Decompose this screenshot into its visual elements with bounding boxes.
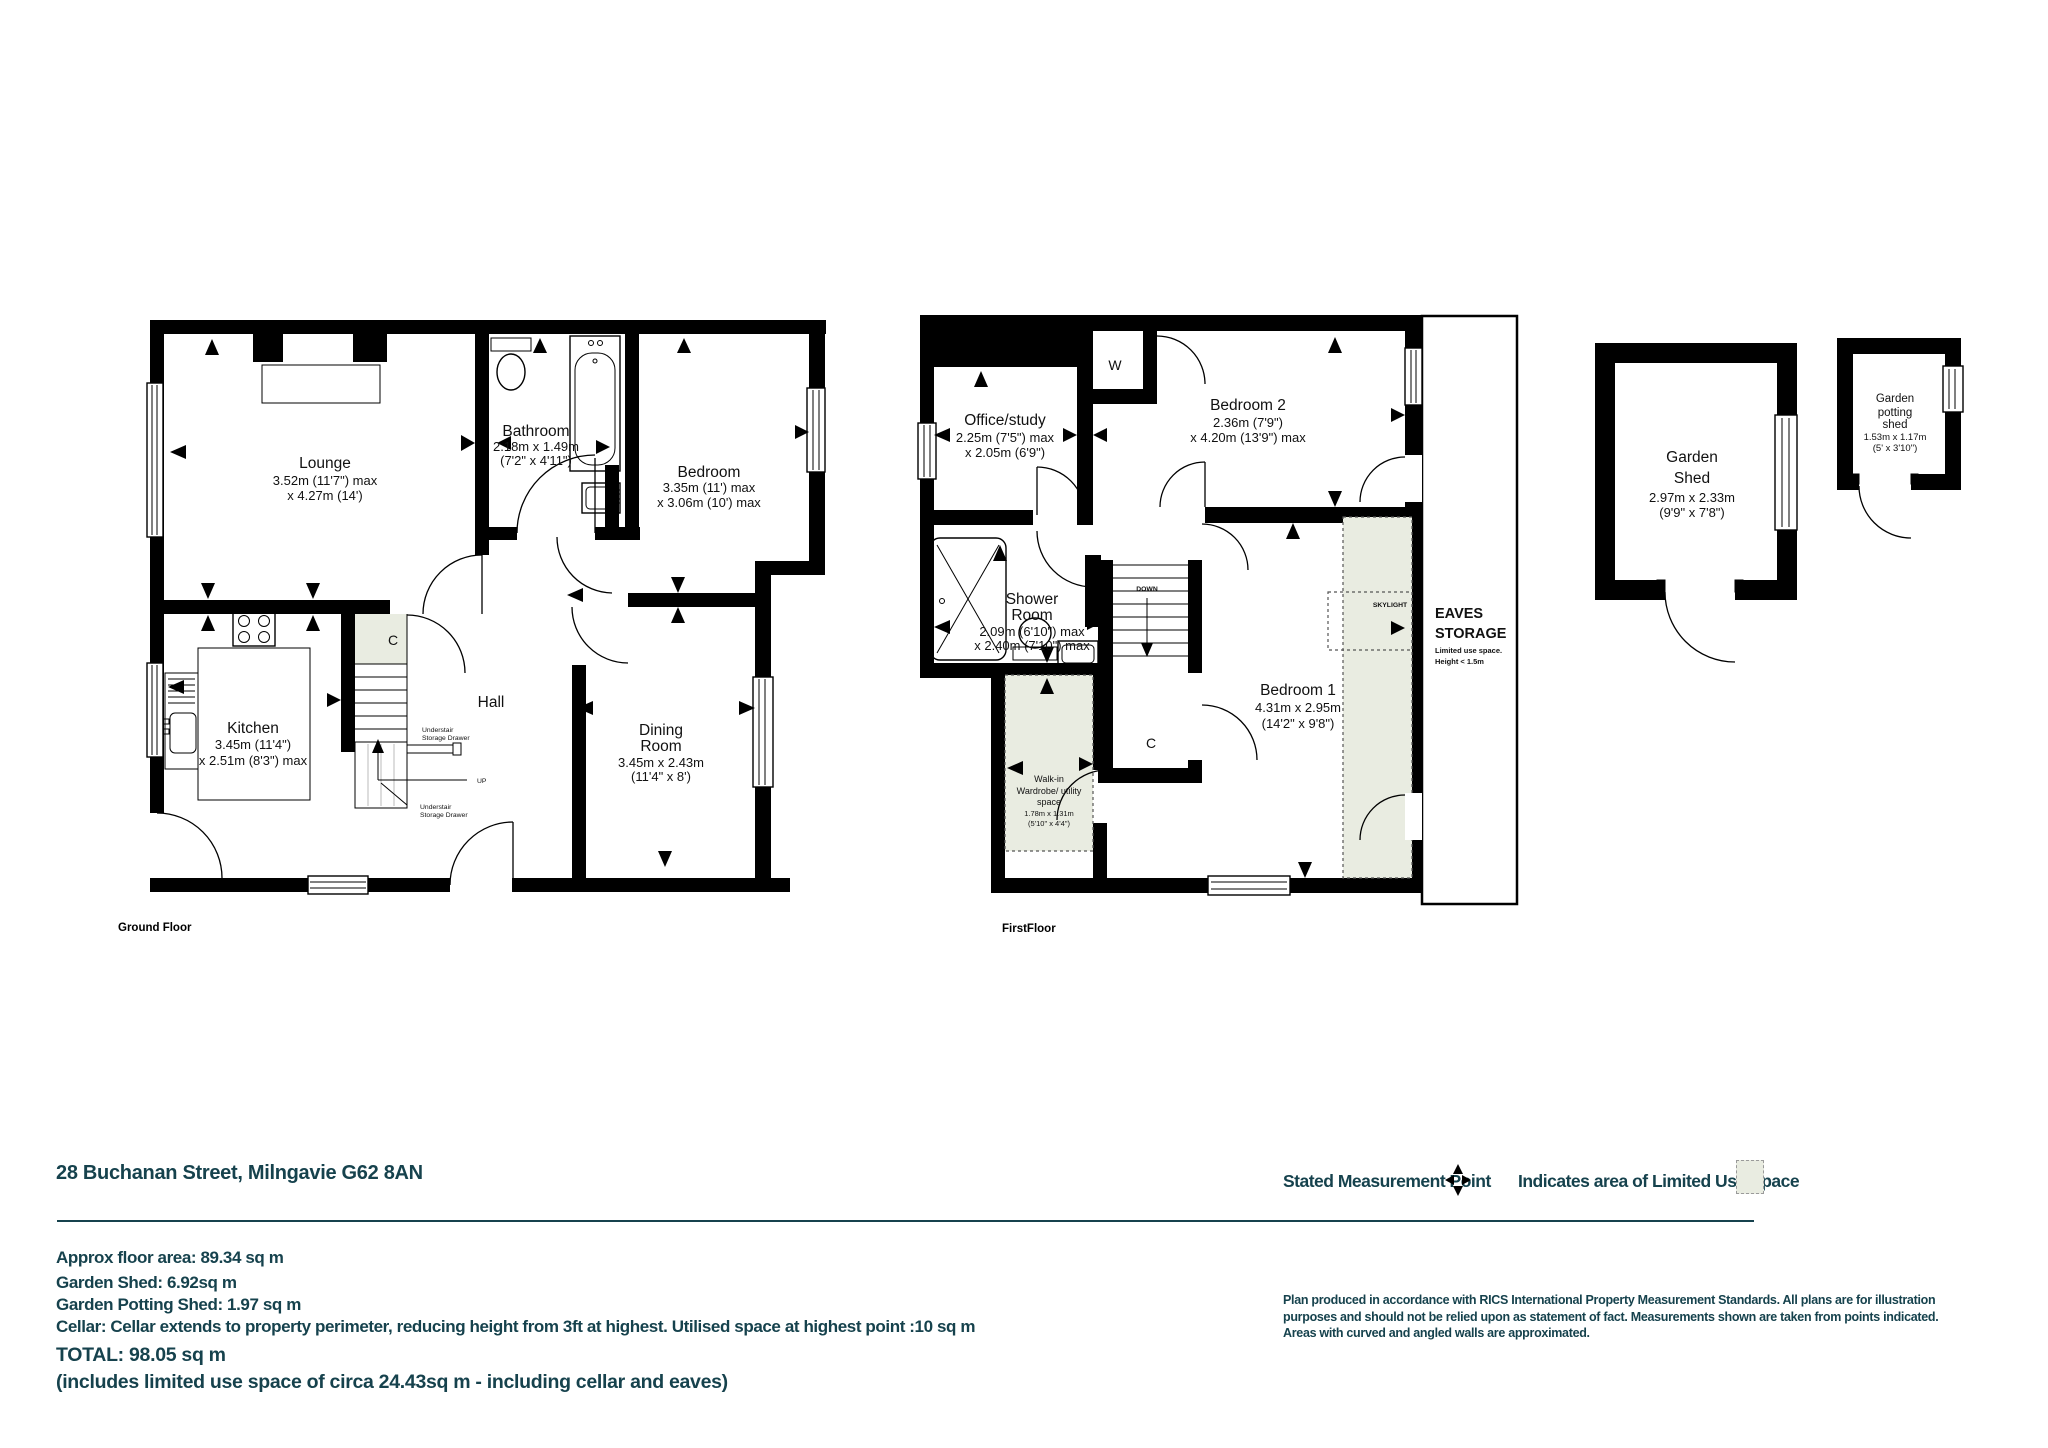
summary-total: TOTAL: 98.05 sq m [56, 1344, 226, 1367]
measurement-arrow-icon [306, 583, 320, 599]
garden-shed-plan: Garden Shed 2.97m x 2.33m (9'9" x 7'8") [1592, 340, 1807, 675]
window-symbol [308, 876, 368, 894]
room-label-shower-room: Room [1011, 607, 1052, 624]
svg-text:Limited use space.: Limited use space. [1435, 646, 1502, 655]
room-dims: (14'2" x 9'8") [1262, 716, 1335, 731]
understair-label: Understair [422, 727, 454, 734]
svg-text:Garden: Garden [1666, 449, 1718, 466]
down-arrow-icon [1141, 598, 1153, 657]
svg-text:(5' x 3'10"): (5' x 3'10") [1873, 443, 1918, 454]
measurement-arrow-icon [671, 577, 685, 593]
window-symbol [1405, 348, 1422, 405]
window-symbol [918, 423, 936, 479]
walk-in-label: Wardrobe/ utility [1017, 786, 1082, 796]
property-address: 28 Buchanan Street, Milngavie G62 8AN [56, 1162, 423, 1185]
toilet-icon [491, 338, 531, 390]
measurement-arrow-icon [201, 583, 215, 599]
up-label: UP [477, 778, 487, 785]
cupboard-label: C [1146, 735, 1156, 751]
measurement-arrow-icon [677, 338, 691, 353]
measurement-arrow-icon [1391, 408, 1405, 422]
summary-garden-shed: Garden Shed: 6.92sq m [56, 1273, 237, 1293]
svg-text:Height < 1.5m: Height < 1.5m [1435, 657, 1484, 666]
room-dims: x 3.06m (10') max [657, 495, 761, 510]
summary-cellar: Cellar: Cellar extends to property perim… [56, 1317, 975, 1337]
floorplan-page: Lounge 3.52m (11'7") max x 4.27m (14') B… [0, 0, 2048, 1448]
measurement-arrow-icon [461, 435, 475, 451]
understair-label: Storage Drawer [420, 812, 468, 819]
window-symbol [807, 388, 825, 472]
measurement-arrow-icon [327, 693, 341, 707]
fireplace-hearth [262, 365, 380, 403]
svg-text:1.53m x 1.17m: 1.53m x 1.17m [1864, 432, 1927, 443]
storage-drawer-icon [407, 745, 453, 753]
room-dims: 3.45m (11'4") [215, 737, 291, 752]
svg-text:potting: potting [1878, 407, 1913, 419]
room-dims: 3.45m x 2.43m [618, 755, 704, 770]
summary-approx-floor-area: Approx floor area: 89.34 sq m [56, 1248, 283, 1268]
ground-floor-label: Ground Floor [118, 922, 191, 934]
staircase-first-floor [1113, 565, 1188, 657]
walk-in-label: Walk-in [1034, 774, 1064, 784]
room-dims: 4.31m x 2.95m [1255, 700, 1341, 715]
understair-label: Understair [420, 804, 452, 811]
cupboard-shading [355, 614, 407, 664]
room-dims: x 4.27m (14') [287, 488, 362, 503]
room-dims: x 2.05m (6'9") [965, 445, 1045, 460]
svg-text:Shed: Shed [1674, 470, 1710, 487]
down-label: DOWN [1136, 586, 1158, 593]
measurement-arrow-icon [1328, 337, 1342, 353]
room-dims: 2.09m (6'10") max [979, 624, 1085, 639]
measurement-arrow-icon [567, 588, 583, 602]
door-arc-icon [1657, 580, 1743, 662]
skylight-label: SKYLIGHT [1373, 602, 1408, 609]
room-label-bedroom: Bedroom [678, 464, 741, 481]
first-floor-plan: Office/study 2.25m (7'5") max x 2.05m (6… [915, 243, 1525, 913]
ground-floor-walls [150, 320, 826, 892]
window-symbol [753, 677, 773, 787]
measurement-arrow-icon [658, 851, 672, 867]
walk-in-dims: 1.78m x 1.31m [1024, 809, 1074, 818]
understair-label: Storage Drawer [422, 735, 470, 742]
first-floor-label: FirstFloor [1002, 923, 1056, 935]
ground-floor-plan: Lounge 3.52m (11'7") max x 4.27m (14') B… [145, 315, 835, 915]
room-dims: x 2.51m (8'3") max [199, 753, 308, 768]
measurement-arrow-icon [533, 338, 547, 353]
window-symbol [147, 663, 163, 757]
svg-text:Garden: Garden [1876, 393, 1914, 405]
room-label-dining: Dining [639, 722, 683, 739]
divider-line [57, 1220, 1754, 1222]
measurement-arrow-icon [934, 620, 950, 634]
disclaimer-line: purposes and should not be relied upon a… [1283, 1309, 1938, 1326]
window-symbol [1775, 415, 1797, 530]
window-symbol [1208, 876, 1290, 895]
window-symbol [147, 383, 163, 537]
room-label-office: Office/study [964, 412, 1046, 429]
measurement-arrow-icon [168, 680, 184, 694]
hob-icon [233, 612, 275, 646]
measurement-arrow-icon [596, 440, 610, 454]
measurement-arrow-icon [671, 607, 685, 623]
limited-use-swatch [1736, 1160, 1764, 1194]
summary-garden-potting-shed: Garden Potting Shed: 1.97 sq m [56, 1295, 301, 1315]
room-label-kitchen: Kitchen [227, 720, 279, 737]
measurement-arrow-icon [1093, 428, 1107, 442]
door-arc-icon [1852, 474, 1918, 538]
ground-floor-doors [150, 455, 628, 892]
measurement-arrow-icon [1286, 523, 1300, 539]
summary-includes-note: (includes limited use space of circa 24.… [56, 1371, 728, 1394]
disclaimer-line: Plan produced in accordance with RICS In… [1283, 1292, 1938, 1309]
measurement-arrow-icon [1298, 862, 1312, 878]
measurement-arrow-icon [306, 615, 320, 631]
room-dims: 2.36m (7'9") [1213, 415, 1283, 430]
svg-text:EAVES: EAVES [1435, 606, 1483, 622]
measurement-point-icon [1443, 1162, 1473, 1198]
skylight-limited-use-strip [1343, 517, 1412, 878]
room-dims: x 4.20m (13'9") max [1190, 430, 1306, 445]
measurement-arrow-icon [170, 445, 186, 459]
staircase [355, 614, 467, 808]
cupboard-label: C [388, 632, 398, 648]
garden-shed-label: Garden Shed 2.97m x 2.33m (9'9" x 7'8") [1649, 449, 1735, 520]
walk-in-label: space [1037, 797, 1061, 807]
disclaimer-text: Plan produced in accordance with RICS In… [1283, 1292, 1938, 1342]
room-label-shower-room: Shower [1006, 591, 1059, 608]
room-label-bathroom: Bathroom [502, 423, 569, 440]
potting-shed-label: Garden potting shed 1.53m x 1.17m (5' x … [1864, 393, 1927, 454]
measurement-arrow-icon [974, 371, 988, 387]
disclaimer-line: Areas with curved and angled walls are a… [1283, 1325, 1938, 1342]
wardrobe-label: W [1108, 357, 1122, 373]
svg-text:shed: shed [1883, 419, 1908, 431]
room-dims: 2.25m (7'5") max [956, 430, 1055, 445]
room-label-lounge: Lounge [299, 455, 351, 472]
measurement-arrow-icon [993, 545, 1007, 561]
garden-potting-shed-plan: Garden potting shed 1.53m x 1.17m (5' x … [1835, 336, 1965, 541]
svg-text:(9'9" x 7'8"): (9'9" x 7'8") [1659, 505, 1725, 520]
kitchen-fixtures [163, 612, 310, 800]
room-dims: (11'4" x 8') [631, 769, 691, 784]
room-label-bedroom2: Bedroom 2 [1210, 397, 1286, 414]
window-symbol [1943, 366, 1963, 412]
measurement-arrow-icon [1328, 491, 1342, 507]
room-dims: (7'2" x 4'11") [500, 453, 572, 468]
measurement-arrow-icon [205, 339, 219, 355]
room-label-bedroom1: Bedroom 1 [1260, 682, 1336, 699]
room-dims: 2.18m x 1.49m [493, 439, 579, 454]
measurement-arrow-icon [1063, 428, 1077, 442]
walk-in-dims: (5'10" x 4'4") [1028, 819, 1070, 828]
room-label-dining: Room [640, 738, 681, 755]
measurement-arrow-icon [201, 615, 215, 631]
room-dims: 3.52m (11'7") max [273, 473, 378, 488]
room-dims: 3.35m (11') max [663, 480, 756, 495]
room-dims: x 2.40m (7'10") max [974, 638, 1090, 653]
svg-text:STORAGE: STORAGE [1435, 626, 1507, 642]
svg-text:2.97m x 2.33m: 2.97m x 2.33m [1649, 490, 1735, 505]
room-label-hall: Hall [478, 694, 505, 711]
